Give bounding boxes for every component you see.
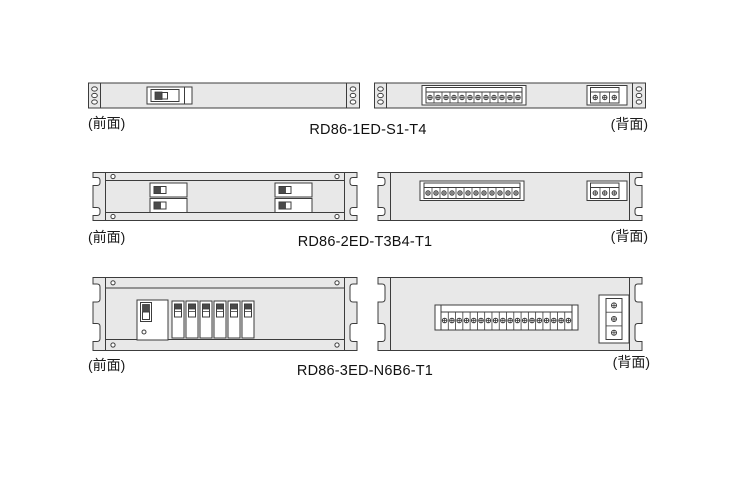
main-breaker [137, 300, 168, 340]
diagram-canvas: (前面) RD86-1ED-S1-T4 (背面) [0, 0, 742, 479]
unit1-front-label: (前面) [88, 113, 125, 133]
branch-breaker [214, 301, 226, 338]
panel-face [101, 83, 347, 108]
unit1-back-view-drawing [374, 82, 646, 110]
unit3-front-label: (前面) [88, 355, 125, 375]
terminal-block-3 [587, 86, 627, 106]
branch-breaker [242, 301, 254, 338]
mounting-ear-right [345, 173, 358, 221]
mounting-ear-right [345, 278, 358, 351]
mounting-ear-left [93, 173, 106, 221]
terminal-block-12 [420, 181, 524, 201]
terminal-block-3 [587, 181, 627, 201]
branch-breaker [172, 301, 184, 338]
unit1-model-label: RD86-1ED-S1-T4 [243, 122, 493, 138]
mounting-ear-left [378, 173, 391, 221]
ear-holes-left [92, 87, 98, 104]
unit2-back-view-drawing [373, 170, 647, 226]
mounting-ear-right [630, 173, 643, 221]
unit2-front-view-drawing [88, 170, 362, 226]
unit3-back-label: (背面) [550, 352, 650, 372]
unit1-front-view-drawing [88, 82, 360, 110]
mounting-ear-left [378, 278, 391, 351]
ear-holes-left [378, 87, 384, 104]
unit3-front-view-drawing [88, 275, 362, 353]
unit2-model-label: RD86-2ED-T3B4-T1 [240, 234, 490, 250]
ear-holes-right [636, 87, 642, 104]
mounting-ear-left [93, 278, 106, 351]
branch-breaker [186, 301, 198, 338]
unit1-back-label: (背面) [548, 114, 648, 134]
terminal-block-12 [422, 86, 526, 106]
unit3-model-label: RD86-3ED-N6B6-T1 [240, 363, 490, 379]
branch-breaker [200, 301, 212, 338]
unit2-back-label: (背面) [548, 226, 648, 246]
mounting-ear-right [630, 278, 643, 351]
terminal-block-18 [435, 305, 578, 330]
unit2-front-label: (前面) [88, 227, 125, 247]
rocker-switch [147, 87, 192, 104]
ear-holes-right [350, 87, 356, 104]
terminal-block-3-vertical [599, 295, 629, 343]
branch-breaker [228, 301, 240, 338]
unit3-back-view-drawing [373, 275, 647, 353]
